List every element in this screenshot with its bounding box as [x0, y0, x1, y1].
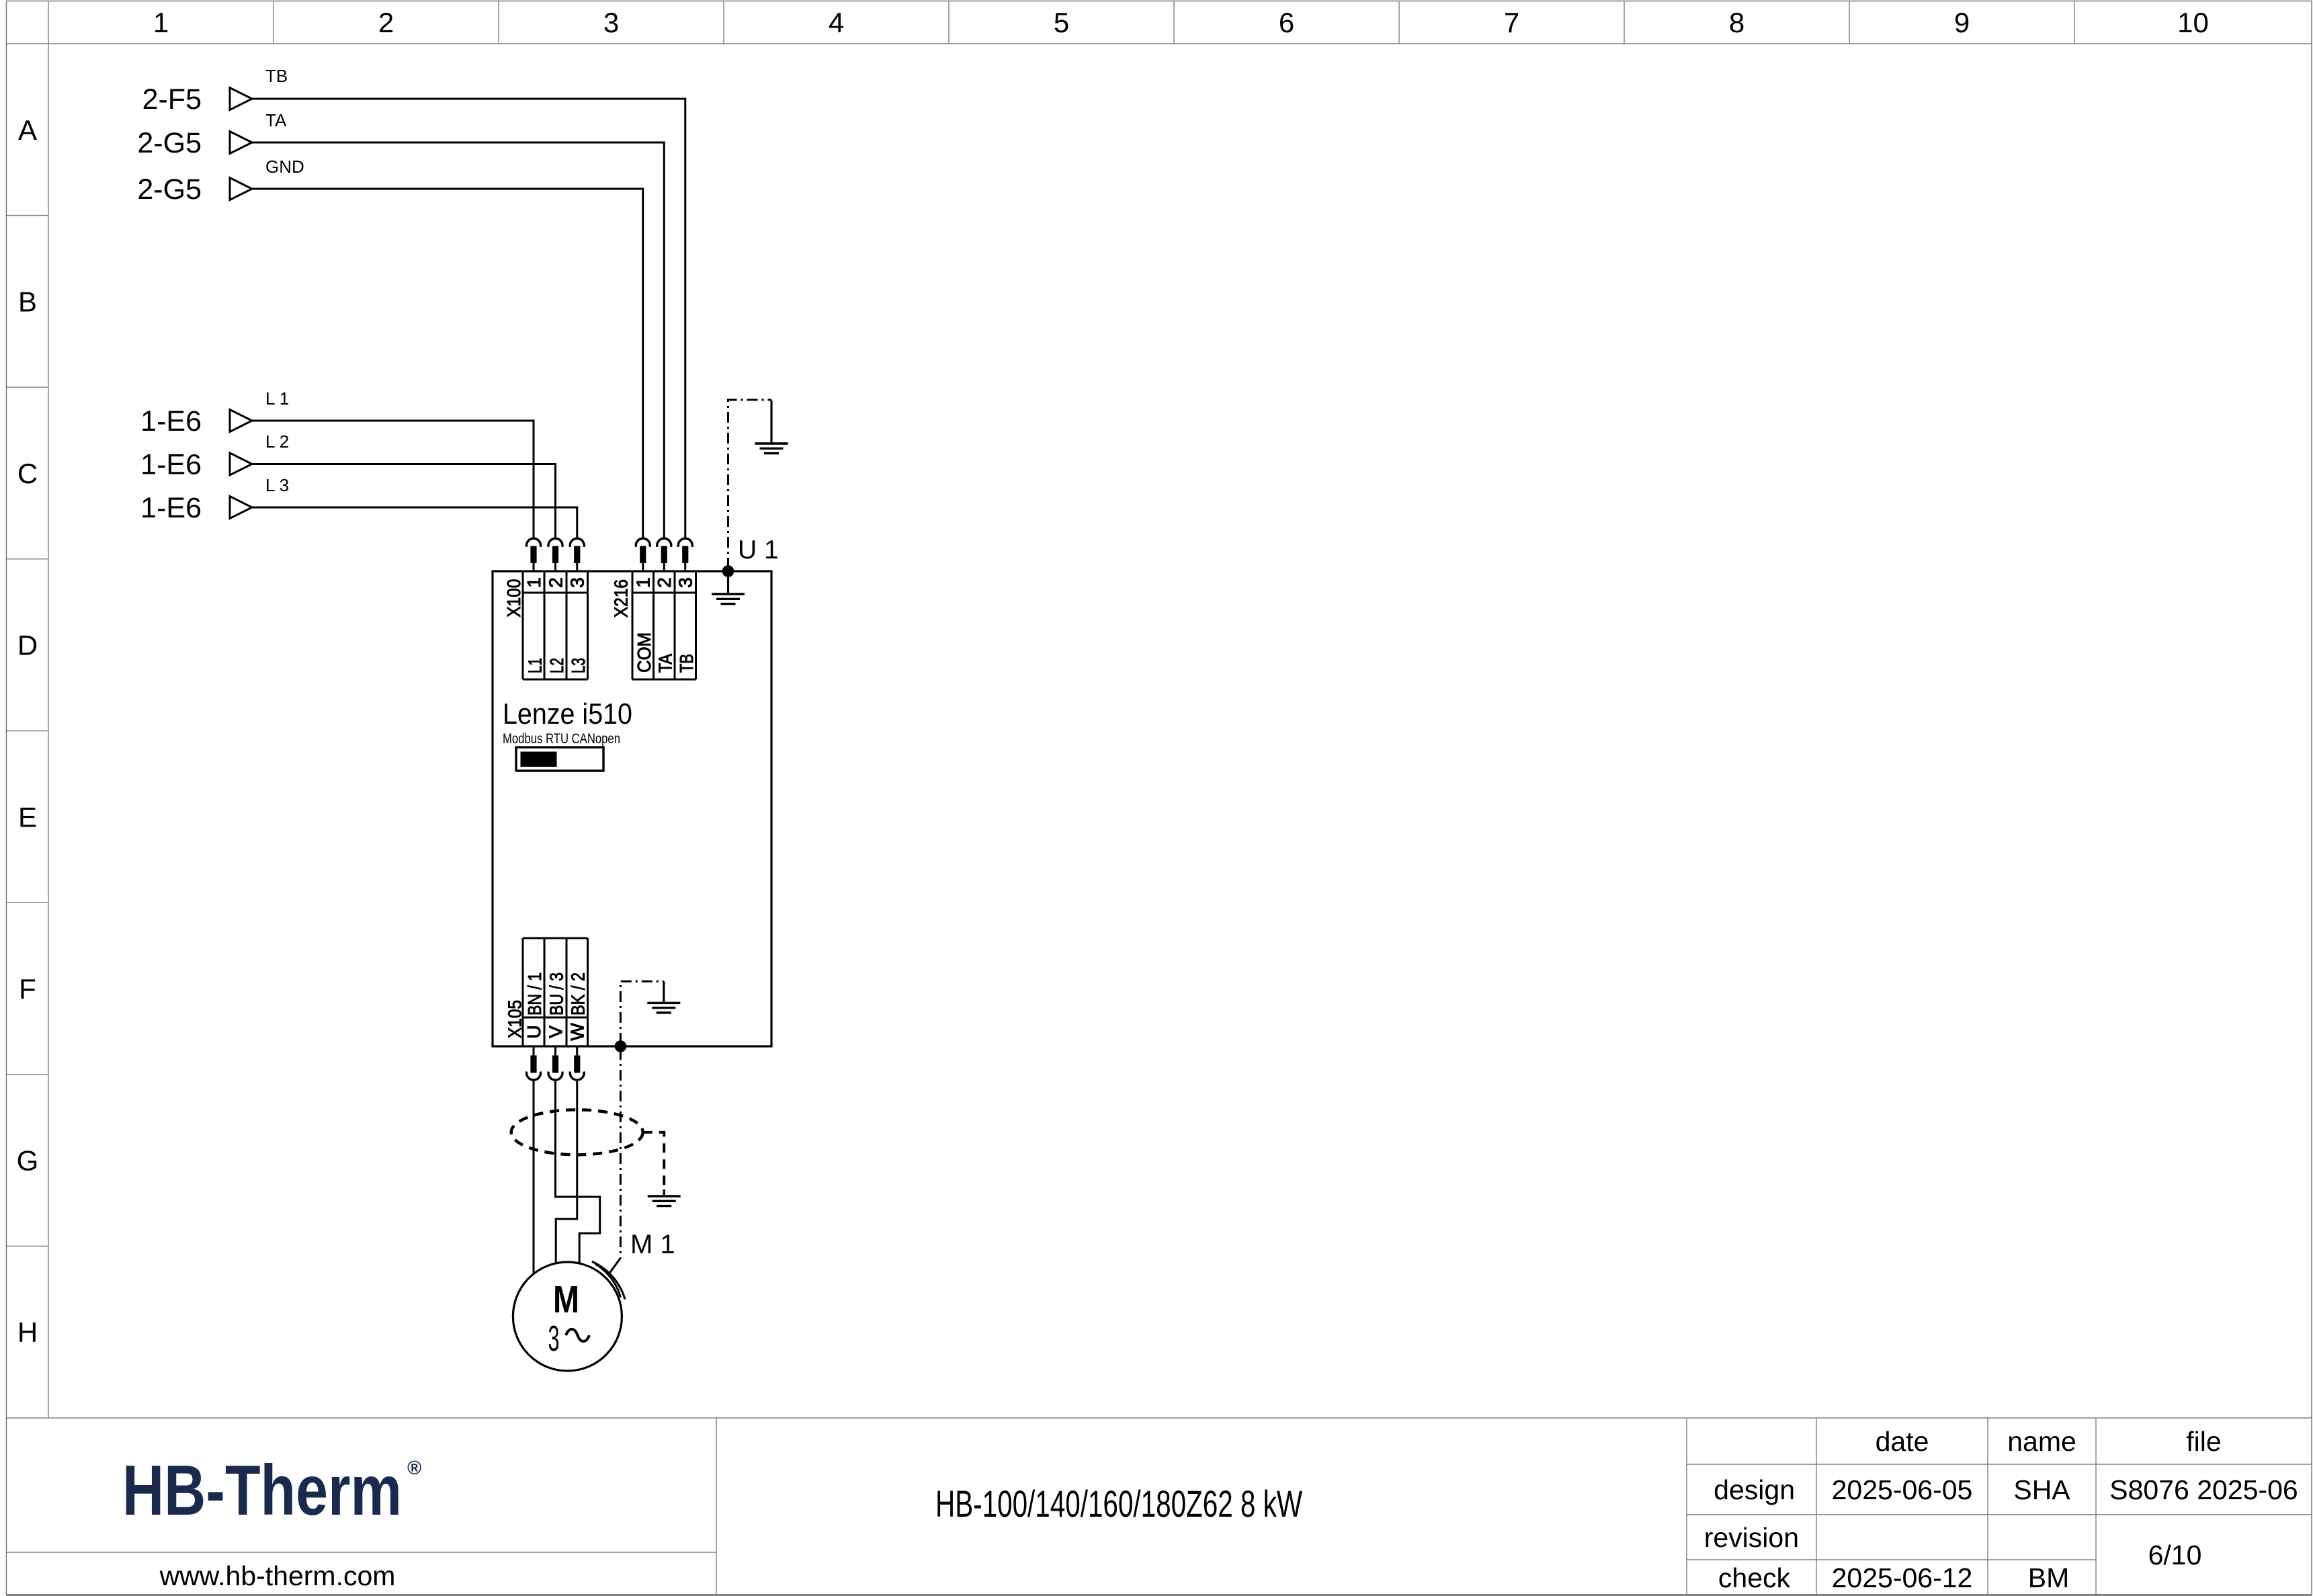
svg-text:D: D	[17, 630, 38, 661]
svg-text:M: M	[553, 1278, 579, 1321]
svg-text:5: 5	[1054, 7, 1069, 38]
svg-text:TB: TB	[265, 66, 288, 86]
svg-text:X100: X100	[503, 579, 524, 618]
svg-text:name: name	[2007, 1426, 2076, 1457]
svg-text:BU / 3: BU / 3	[546, 972, 567, 1015]
svg-text:9: 9	[1954, 7, 1970, 38]
svg-text:SHA: SHA	[2013, 1474, 2070, 1505]
svg-text:BN / 1: BN / 1	[524, 972, 545, 1015]
svg-text:TA: TA	[265, 110, 287, 130]
svg-text:design: design	[1714, 1474, 1795, 1505]
svg-text:L3: L3	[568, 658, 589, 673]
svg-text:1: 1	[153, 7, 169, 38]
svg-text:B: B	[18, 286, 37, 317]
svg-text:G: G	[17, 1145, 39, 1177]
svg-text:GND: GND	[265, 157, 304, 177]
svg-text:C: C	[17, 458, 38, 489]
svg-text:3: 3	[567, 577, 588, 588]
svg-text:2025-06-05: 2025-06-05	[1832, 1474, 1973, 1505]
svg-text:TB: TB	[676, 654, 697, 673]
svg-text:L1: L1	[525, 658, 546, 673]
svg-text:Modbus RTU CANopen: Modbus RTU CANopen	[503, 730, 620, 747]
svg-text:10: 10	[2177, 7, 2209, 38]
svg-text:U 1: U 1	[738, 536, 779, 564]
svg-text:1: 1	[633, 577, 654, 588]
svg-text:1: 1	[523, 577, 544, 588]
svg-text:X216: X216	[611, 579, 632, 618]
svg-text:L 1: L 1	[265, 388, 289, 409]
svg-text:8: 8	[1729, 7, 1744, 38]
svg-text:®: ®	[407, 1458, 421, 1479]
svg-text:2: 2	[546, 577, 566, 588]
svg-text:L 3: L 3	[265, 475, 289, 495]
svg-text:A: A	[18, 114, 37, 146]
svg-text:2: 2	[654, 577, 675, 588]
svg-text:F: F	[19, 973, 36, 1005]
svg-text:1-E6: 1-E6	[140, 405, 202, 437]
svg-text:www.hb-therm.com: www.hb-therm.com	[159, 1560, 396, 1591]
svg-text:6: 6	[1279, 7, 1294, 38]
svg-text:2-G5: 2-G5	[137, 173, 202, 206]
svg-text:1-E6: 1-E6	[140, 449, 202, 481]
svg-text:1-E6: 1-E6	[140, 492, 202, 524]
svg-text:TA: TA	[655, 654, 676, 673]
svg-text:3: 3	[603, 7, 619, 38]
svg-text:BK / 2: BK / 2	[568, 972, 589, 1015]
svg-text:7: 7	[1504, 7, 1519, 38]
svg-text:L 2: L 2	[265, 431, 289, 452]
svg-text:V: V	[546, 1025, 566, 1038]
svg-text:file: file	[2186, 1426, 2221, 1457]
svg-text:check: check	[1718, 1562, 1791, 1593]
svg-text:M 1: M 1	[630, 1230, 675, 1259]
svg-text:BM: BM	[2028, 1562, 2070, 1593]
svg-text:2025-06-12: 2025-06-12	[1832, 1562, 1973, 1593]
svg-text:E: E	[18, 801, 37, 833]
svg-text:X105: X105	[505, 1000, 525, 1038]
svg-text:6/10: 6/10	[2148, 1540, 2202, 1570]
svg-text:2-F5: 2-F5	[142, 83, 202, 116]
svg-text:3: 3	[548, 1318, 560, 1359]
svg-text:2: 2	[378, 7, 394, 38]
svg-text:L2: L2	[546, 658, 567, 673]
svg-text:S8076 2025-06: S8076 2025-06	[2109, 1474, 2298, 1505]
svg-text:3: 3	[675, 577, 696, 588]
svg-text:date: date	[1876, 1426, 1929, 1457]
svg-text:H: H	[17, 1316, 38, 1348]
svg-text:U: U	[523, 1025, 544, 1038]
svg-text:HB-Therm: HB-Therm	[122, 1451, 402, 1530]
svg-text:4: 4	[829, 7, 844, 38]
svg-text:2-G5: 2-G5	[137, 127, 202, 159]
svg-text:revision: revision	[1704, 1522, 1799, 1553]
svg-text:W: W	[567, 1023, 588, 1041]
svg-text:HB-100/140/160/180Z62 8 kW: HB-100/140/160/180Z62 8 kW	[935, 1482, 1302, 1525]
svg-text:Lenze i510: Lenze i510	[503, 698, 632, 730]
svg-text:COM: COM	[634, 632, 655, 673]
